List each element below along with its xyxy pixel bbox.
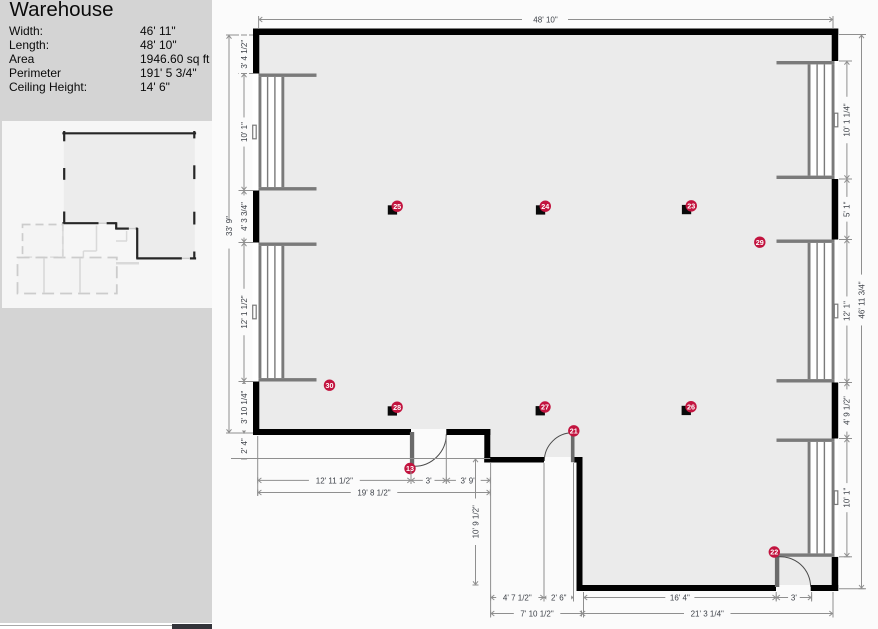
- svg-text:3': 3': [791, 594, 797, 603]
- svg-text:26: 26: [687, 402, 695, 411]
- svg-text:10' 1": 10' 1": [843, 488, 852, 508]
- svg-text:22: 22: [770, 548, 778, 557]
- svg-text:2' 4": 2' 4": [240, 438, 249, 454]
- svg-text:21' 3 1/4": 21' 3 1/4": [691, 610, 724, 619]
- svg-text:12' 1 1/2": 12' 1 1/2": [240, 295, 249, 328]
- svg-text:10' 1": 10' 1": [240, 122, 249, 142]
- svg-text:7' 10 1/2": 7' 10 1/2": [520, 610, 553, 619]
- svg-text:4' 9 1/2": 4' 9 1/2": [843, 396, 852, 425]
- svg-text:48' 10": 48' 10": [533, 16, 558, 25]
- svg-text:12' 1": 12' 1": [843, 301, 852, 321]
- svg-text:12' 11 1/2": 12' 11 1/2": [316, 476, 353, 485]
- svg-text:2' 6": 2' 6": [551, 594, 567, 603]
- svg-text:19' 8 1/2": 19' 8 1/2": [357, 489, 390, 498]
- svg-text:10' 1 1/4": 10' 1 1/4": [843, 103, 852, 136]
- svg-text:13: 13: [406, 464, 414, 473]
- svg-text:27: 27: [541, 403, 549, 412]
- svg-text:30: 30: [326, 381, 334, 390]
- svg-text:4' 7 1/2": 4' 7 1/2": [503, 594, 532, 603]
- svg-text:16' 4": 16' 4": [670, 594, 690, 603]
- svg-text:25: 25: [393, 202, 401, 211]
- svg-text:3' 9": 3' 9": [461, 476, 477, 485]
- svg-text:3': 3': [426, 476, 432, 485]
- svg-text:3' 4 1/2": 3' 4 1/2": [240, 40, 249, 69]
- svg-text:3' 10 1/4": 3' 10 1/4": [240, 390, 249, 423]
- svg-text:24: 24: [541, 202, 549, 211]
- svg-text:23: 23: [687, 201, 695, 210]
- svg-text:21: 21: [570, 426, 578, 435]
- svg-text:28: 28: [393, 403, 401, 412]
- svg-text:46' 11 3/4": 46' 11 3/4": [857, 281, 866, 318]
- svg-text:33' 9": 33' 9": [225, 216, 234, 236]
- svg-text:29: 29: [756, 238, 764, 247]
- svg-text:4' 3 3/4": 4' 3 3/4": [240, 202, 249, 231]
- svg-text:5' 1": 5' 1": [843, 201, 852, 217]
- svg-text:10' 9 1/2": 10' 9 1/2": [471, 505, 480, 538]
